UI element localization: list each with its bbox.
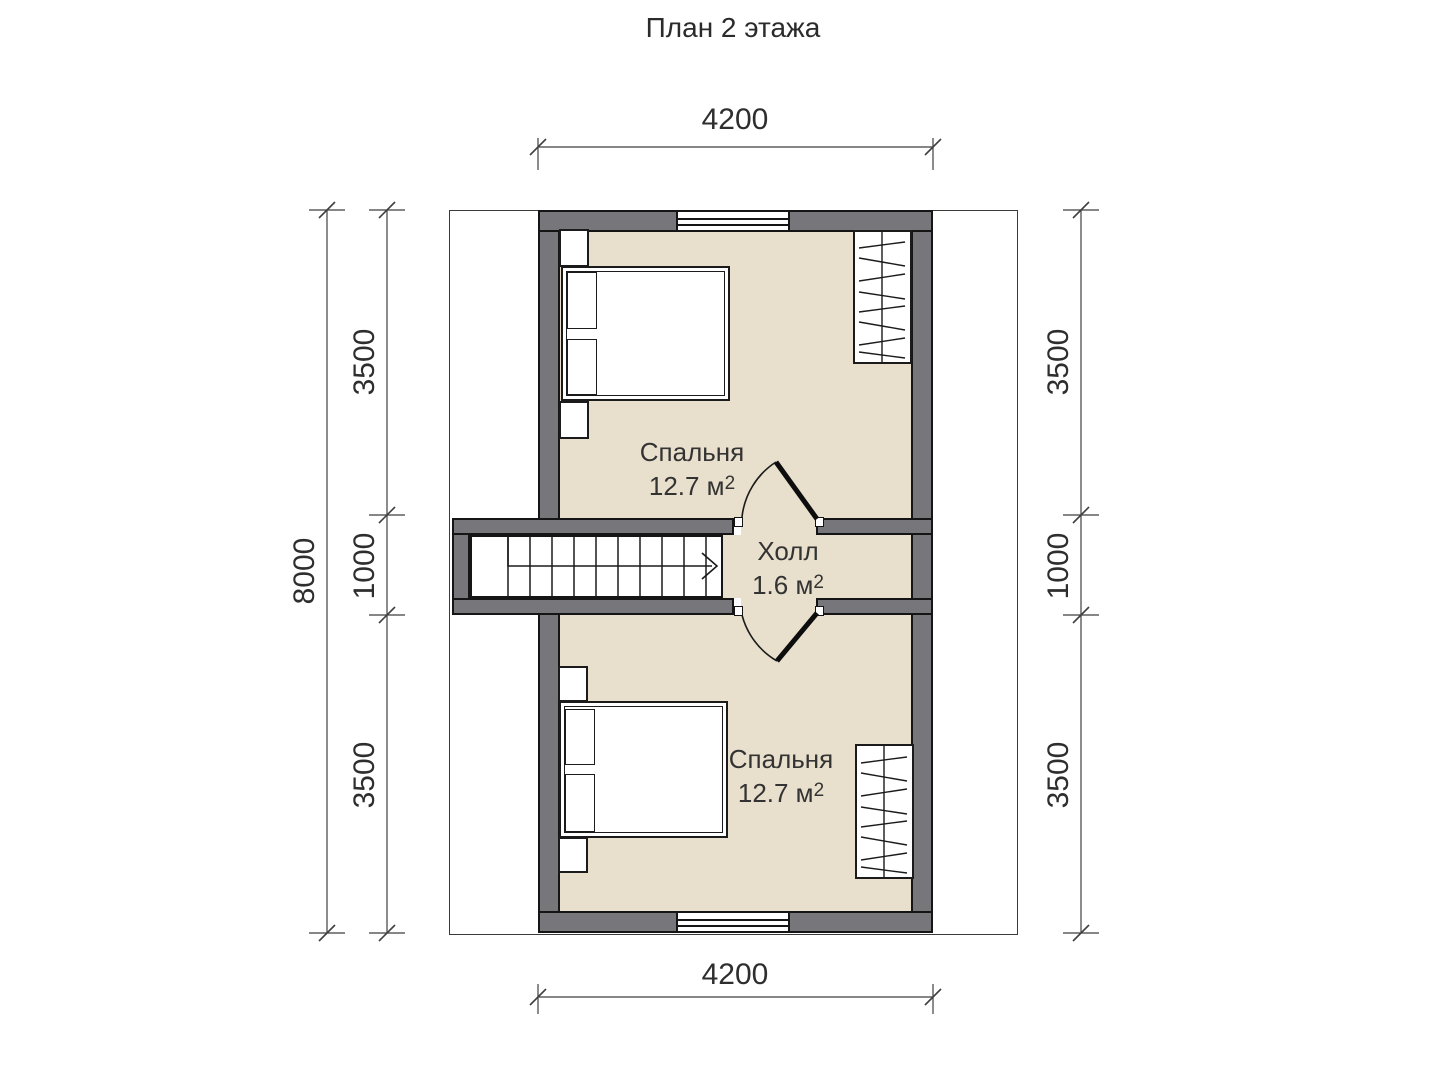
window-glazing-line bbox=[678, 218, 788, 220]
nightstand bbox=[558, 837, 588, 873]
dim-label-top: 4200 bbox=[635, 103, 835, 137]
pillow bbox=[567, 272, 597, 329]
nightstand bbox=[558, 666, 588, 702]
room-name: Спальня bbox=[640, 437, 744, 467]
door-jamb bbox=[734, 606, 743, 616]
wardrobe-top-bedroom bbox=[853, 230, 912, 364]
pillow bbox=[565, 709, 595, 765]
dim-label-right-3500b: 3500 bbox=[1042, 675, 1078, 875]
room-area: 1.6 м bbox=[752, 570, 813, 600]
door-jamb bbox=[734, 517, 743, 527]
window-glazing-line bbox=[678, 224, 788, 226]
dim-label-left-3500b: 3500 bbox=[348, 675, 384, 875]
dim-label-left-3500a: 3500 bbox=[348, 262, 384, 462]
plan-title: План 2 этажа bbox=[583, 12, 883, 44]
bedroom-bottom-label: Спальня 12.7 м2 bbox=[686, 744, 876, 809]
window-top bbox=[676, 210, 790, 232]
room-area: 12.7 м bbox=[738, 778, 814, 808]
nightstand bbox=[559, 229, 589, 267]
wall-top-right-segment bbox=[788, 210, 933, 232]
wall-bottom-left-segment bbox=[538, 911, 678, 933]
room-area-sup: 2 bbox=[725, 473, 736, 494]
door-opening-top bbox=[741, 518, 817, 535]
dim-label-left-total: 8000 bbox=[288, 471, 324, 671]
dim-label-right-1000: 1000 bbox=[1042, 466, 1078, 666]
room-name: Спальня bbox=[729, 744, 833, 774]
door-jamb bbox=[815, 517, 824, 527]
window-bottom bbox=[676, 911, 790, 933]
dim-line-top bbox=[530, 138, 941, 170]
wall-bottom-right-segment bbox=[788, 911, 933, 933]
pillow bbox=[565, 774, 595, 832]
stairwell bbox=[470, 535, 723, 598]
dim-label-bottom: 4200 bbox=[635, 958, 835, 992]
room-name: Холл bbox=[757, 536, 818, 566]
partition-lower-left bbox=[452, 598, 734, 615]
window-glazing-line bbox=[678, 919, 788, 921]
partition-upper-right bbox=[816, 518, 933, 535]
dim-label-left-1000: 1000 bbox=[348, 466, 384, 666]
nightstand bbox=[559, 401, 589, 439]
bedroom-top-label: Спальня 12.7 м2 bbox=[597, 437, 787, 502]
floor-plan-canvas: План 2 этажа 4200 4200 8000 3500 1000 35… bbox=[0, 0, 1440, 1080]
room-area-sup: 2 bbox=[814, 780, 825, 801]
room-area: 12.7 м bbox=[649, 471, 725, 501]
wall-right bbox=[911, 210, 933, 933]
pillow bbox=[567, 339, 597, 395]
hall-label: Холл 1.6 м2 bbox=[733, 536, 843, 601]
partition-upper-left bbox=[452, 518, 734, 535]
door-jamb bbox=[815, 606, 824, 616]
room-area-sup: 2 bbox=[813, 572, 824, 593]
window-glazing-line bbox=[678, 925, 788, 927]
dim-label-right-3500a: 3500 bbox=[1042, 262, 1078, 462]
